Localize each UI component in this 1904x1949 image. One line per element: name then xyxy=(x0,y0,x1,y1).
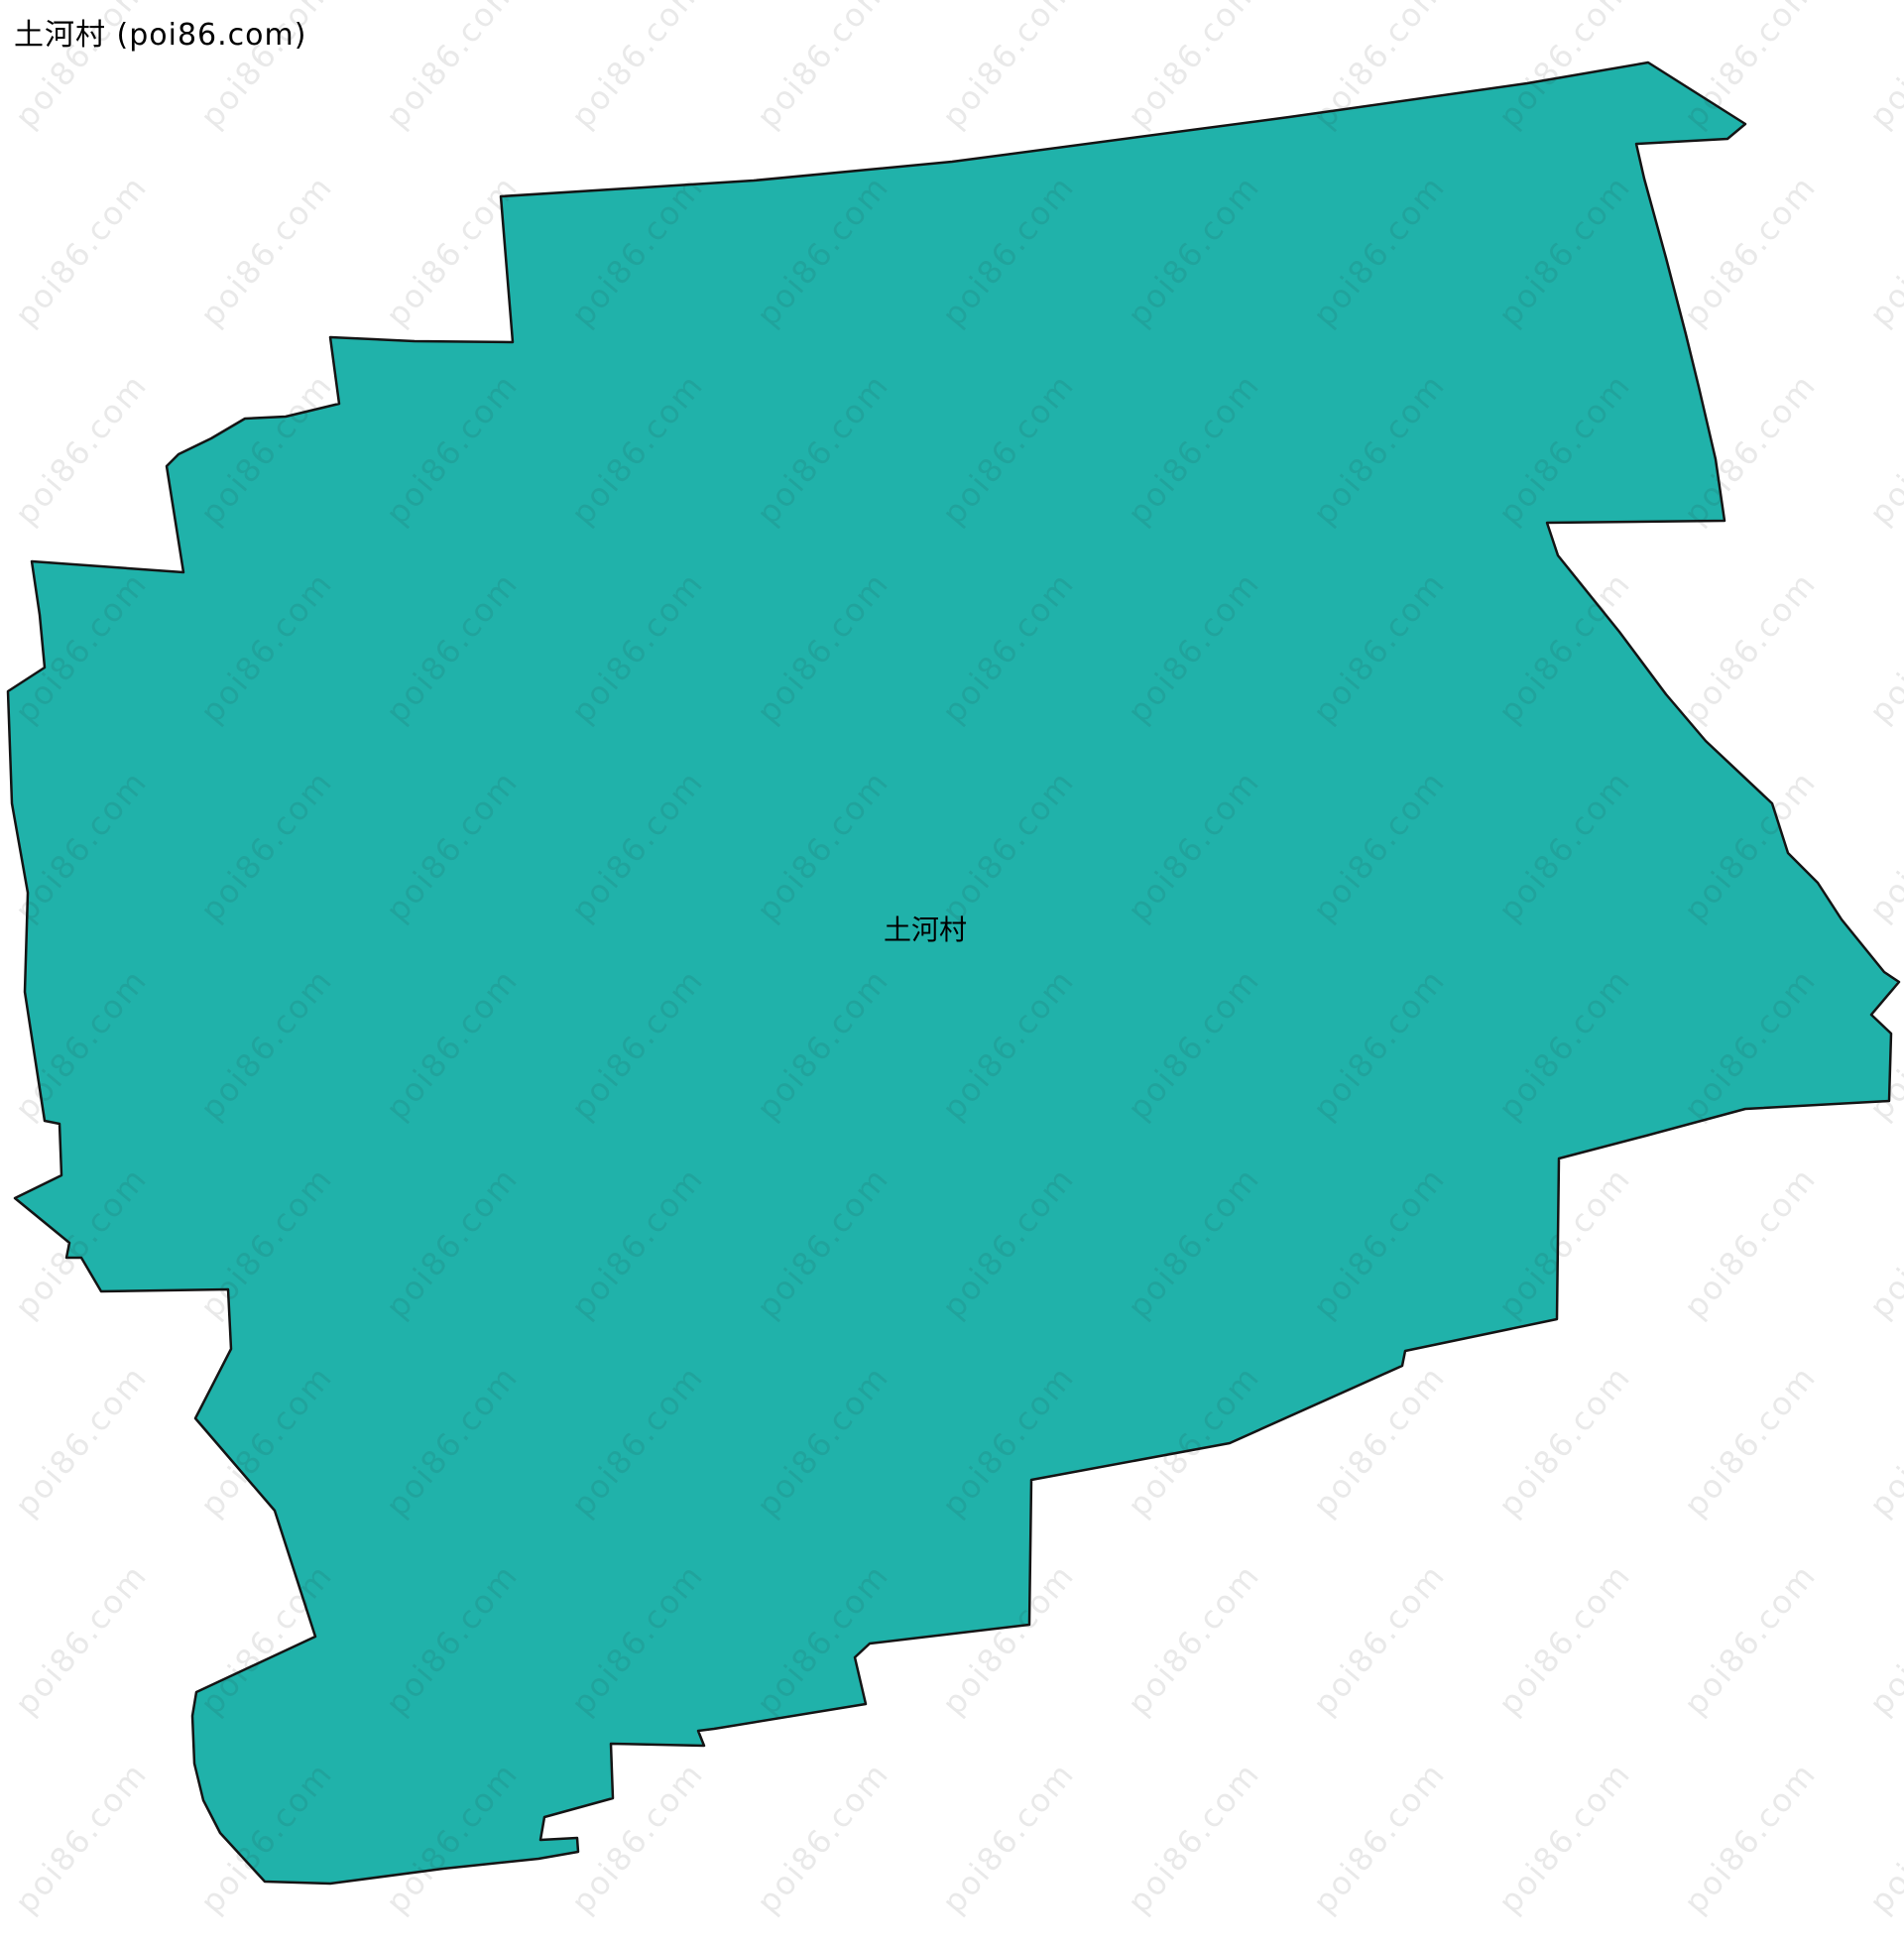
map-page: poi86.compoi86.compoi86.compoi86.compoi8… xyxy=(0,0,1904,1949)
page-title: 土河村 (poi86.com) xyxy=(14,10,306,54)
map-canvas: poi86.compoi86.compoi86.compoi86.compoi8… xyxy=(0,0,1904,1949)
region-label: 土河村 xyxy=(884,909,967,948)
